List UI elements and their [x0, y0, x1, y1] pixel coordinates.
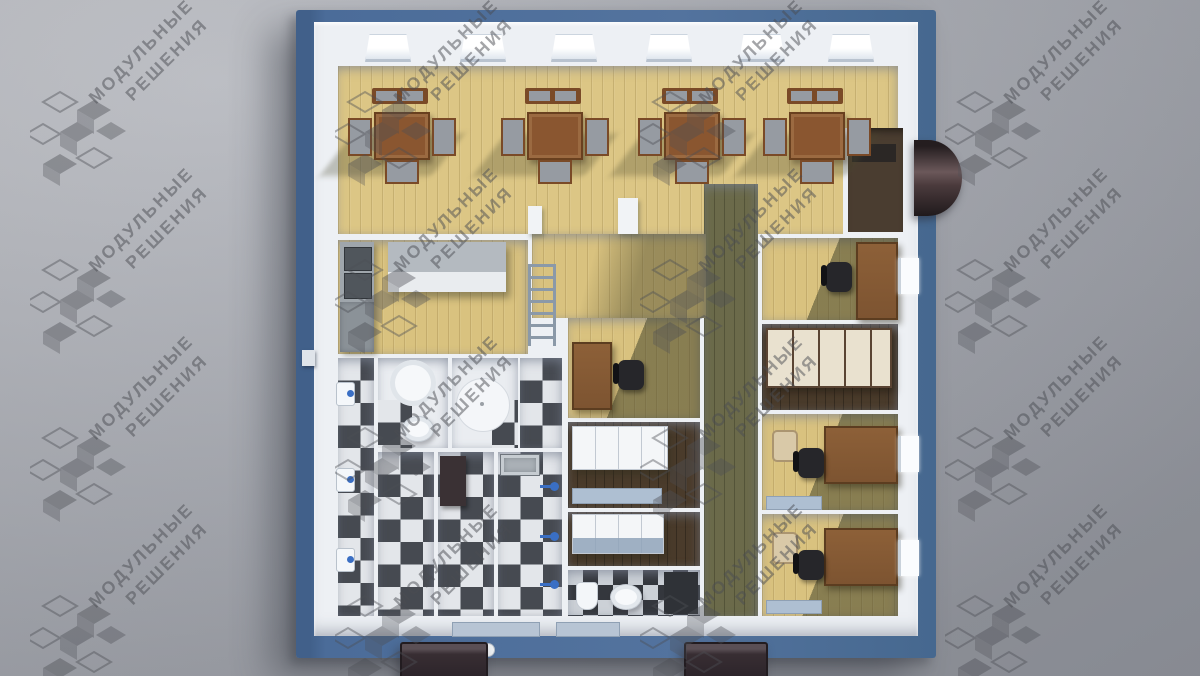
- dining-chair: [800, 160, 834, 184]
- east-window: [898, 436, 919, 472]
- dining-chair: [348, 118, 372, 156]
- dining-table: [789, 112, 845, 160]
- entrance-awning: [684, 642, 768, 676]
- dining-chair: [675, 160, 709, 184]
- north-window: [828, 34, 874, 62]
- wash-basin: [336, 382, 355, 406]
- dining-bench: [787, 88, 843, 104]
- dining-table: [664, 112, 720, 160]
- bench-cushion: [692, 91, 713, 101]
- dining-table: [374, 112, 430, 160]
- faucet: [347, 476, 354, 483]
- dining-chair: [847, 118, 871, 156]
- east-window: [898, 258, 919, 294]
- shower-head: [550, 532, 559, 541]
- dining-set: [348, 86, 452, 188]
- dining-chair: [385, 160, 419, 184]
- north-window: [551, 34, 597, 62]
- bench-cushion: [529, 91, 550, 101]
- dining-chair: [722, 118, 746, 156]
- dining-set: [501, 86, 605, 188]
- bench-cushion: [376, 91, 397, 101]
- dining-chair: [763, 118, 787, 156]
- dining-set: [638, 86, 742, 188]
- north-window: [646, 34, 692, 62]
- north-window: [739, 34, 785, 62]
- east-window: [898, 540, 919, 576]
- bench-cushion: [666, 91, 687, 101]
- faucet: [347, 556, 354, 563]
- wash-basin: [336, 548, 355, 572]
- dining-chair: [432, 118, 456, 156]
- dining-table: [527, 112, 583, 160]
- dining-bench: [662, 88, 718, 104]
- generated-fixtures: [0, 0, 1200, 676]
- dining-set: [763, 86, 867, 188]
- shower-head: [550, 482, 559, 491]
- entrance-awning: [400, 642, 488, 676]
- dining-chair: [501, 118, 525, 156]
- bench-cushion: [791, 91, 812, 101]
- dining-chair: [585, 118, 609, 156]
- wash-basin: [336, 468, 355, 492]
- shower-head: [550, 580, 559, 589]
- north-window: [365, 34, 411, 62]
- bench-cushion: [555, 91, 576, 101]
- bench-cushion: [817, 91, 838, 101]
- dining-bench: [525, 88, 581, 104]
- faucet: [347, 390, 354, 397]
- dining-chair: [538, 160, 572, 184]
- bench-cushion: [402, 91, 423, 101]
- scene-background: МОДУЛЬНЫЕРЕШЕНИЯ МОДУЛЬНЫЕРЕШЕНИЯ МОДУЛЬ…: [0, 0, 1200, 676]
- dining-chair: [638, 118, 662, 156]
- dining-bench: [372, 88, 428, 104]
- north-window: [460, 34, 506, 62]
